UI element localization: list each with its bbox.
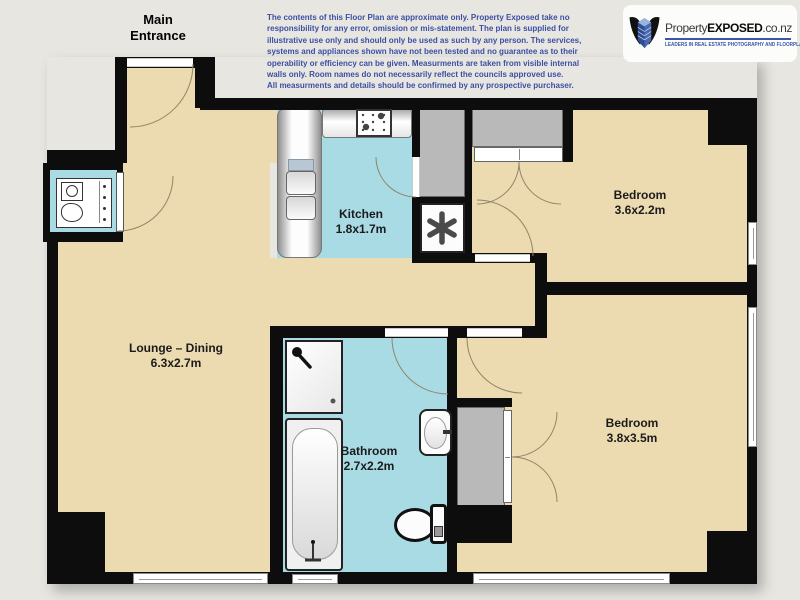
basin-tap xyxy=(443,430,452,434)
entry-door-opening xyxy=(127,58,193,67)
wall xyxy=(465,98,472,263)
laundry-tub-icon xyxy=(61,203,83,222)
hall-cupboard xyxy=(418,107,465,197)
room-label-bedroom-1: Bedroom 3.6x2.2m xyxy=(580,188,700,218)
kitchen-sink-icon xyxy=(286,171,316,195)
bedroom1-wardrobe xyxy=(472,105,563,147)
logo-brand: PropertyEXPOSED.co.nz xyxy=(665,19,793,37)
wall xyxy=(270,326,283,572)
wall xyxy=(708,98,757,145)
room-name: Bathroom xyxy=(309,444,429,459)
logo-rule xyxy=(665,38,791,40)
wall xyxy=(47,150,127,163)
bedroom2-door-opening xyxy=(467,328,522,337)
laundry-appliance-unit xyxy=(56,178,112,228)
bedroom1-window xyxy=(748,222,757,265)
room-label-bathroom: Bathroom 2.7x2.2m xyxy=(309,444,429,474)
disclaimer-text: The contents of this Floor Plan are appr… xyxy=(267,12,621,92)
wall xyxy=(47,512,105,584)
logo-brand-bold: EXPOSED xyxy=(707,21,762,35)
bedroom1-wardrobe-doors xyxy=(474,147,563,162)
laundry-door-leaf xyxy=(116,172,124,232)
laundry-cupboard xyxy=(43,163,123,242)
room-name: Bedroom xyxy=(572,416,692,431)
floor-plan-canvas: Main Entrance Kitchen 1.8x1.7m Lounge – … xyxy=(0,0,800,600)
logo-tagline: LEADERS IN REAL ESTATE PHOTOGRAPHY AND F… xyxy=(665,42,774,49)
room-dims: 3.8x3.5m xyxy=(572,431,692,446)
room-label-kitchen: Kitchen 1.8x1.7m xyxy=(301,207,421,237)
room-dims: 6.3x2.7m xyxy=(96,356,256,371)
bedroom2-floor-upper xyxy=(547,295,747,338)
mid-open-floor xyxy=(270,258,412,326)
shower-icon xyxy=(285,340,343,414)
washing-machine-icon xyxy=(61,182,83,201)
room-name: Lounge – Dining xyxy=(96,341,256,356)
entry-floor xyxy=(127,62,195,108)
sink-top-panel xyxy=(288,159,314,171)
kitchen-door-opening xyxy=(412,157,420,197)
logo-brand-suffix: .co.nz xyxy=(762,21,792,35)
wall xyxy=(563,98,573,162)
room-dims: 2.7x2.2m xyxy=(309,459,429,474)
wall xyxy=(452,505,512,543)
winged-building-icon xyxy=(627,11,662,57)
bathroom-window xyxy=(292,574,338,584)
room-dims: 3.6x2.2m xyxy=(580,203,700,218)
laundry-door-panel xyxy=(99,181,101,223)
property-exposed-logo: PropertyEXPOSED.co.nz LEADERS IN REAL ES… xyxy=(623,5,797,62)
room-label-lounge-dining: Lounge – Dining 6.3x2.7m xyxy=(96,341,256,371)
bedroom1-door-opening xyxy=(475,254,530,262)
kitchen-bench-stove xyxy=(322,108,412,138)
room-dims: 1.8x1.7m xyxy=(301,222,421,237)
bedroom2-wardrobe xyxy=(457,407,505,507)
bathroom-door-opening xyxy=(385,328,448,337)
toilet-cistern xyxy=(430,504,447,544)
bedroom2-wardrobe-doors xyxy=(503,410,512,503)
wall xyxy=(115,57,127,163)
logo-brand-regular: Property xyxy=(665,21,707,35)
wall xyxy=(707,531,757,584)
room-name: Bedroom xyxy=(580,188,700,203)
wall xyxy=(200,98,757,110)
wall xyxy=(535,282,757,295)
room-label-bedroom-2: Bedroom 3.8x3.5m xyxy=(572,416,692,446)
room-name: Kitchen xyxy=(301,207,421,222)
lounge-window xyxy=(133,573,268,584)
wall xyxy=(452,398,512,407)
entry-corridor-floor xyxy=(127,108,277,163)
bedroom2-right-window xyxy=(748,307,757,447)
toilet-button xyxy=(434,526,443,537)
hot-water-cupboard xyxy=(420,203,465,253)
bedroom2-bottom-window xyxy=(473,573,670,584)
main-entrance-label: Main Entrance xyxy=(117,12,199,44)
